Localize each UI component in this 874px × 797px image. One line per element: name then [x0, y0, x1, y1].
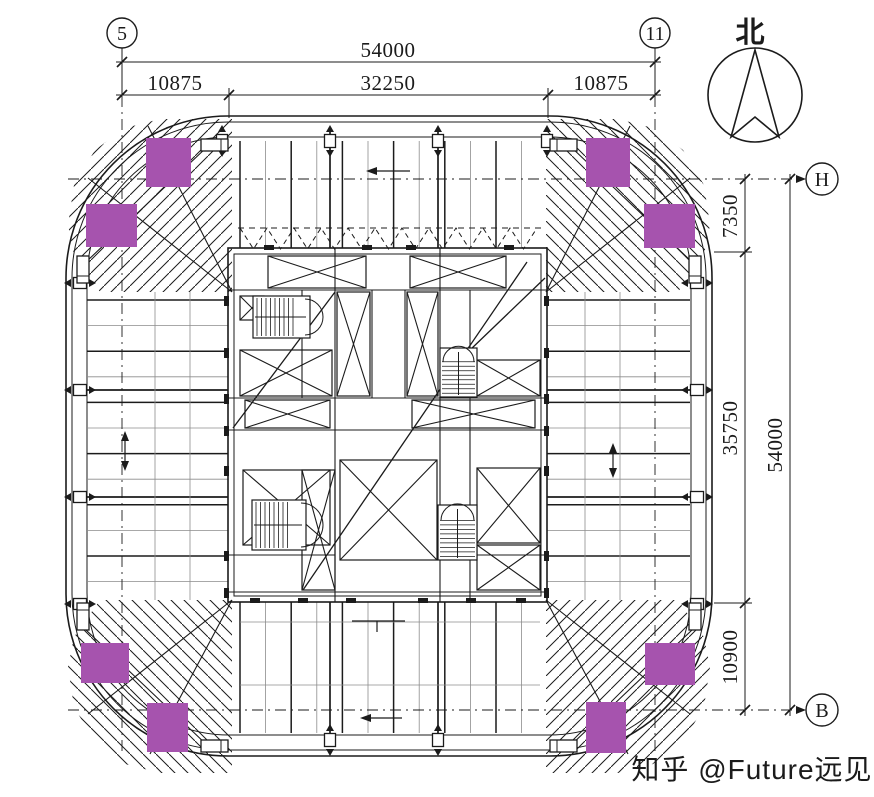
dim-seg-left: 10875: [148, 71, 203, 95]
damper-block: [147, 703, 188, 752]
dimension-top: 5 11 54000 10875 32250 10875: [107, 18, 670, 118]
north-arrow-icon: 北: [708, 15, 802, 142]
dim-seg-mid: 32250: [361, 71, 416, 95]
grid-label-B: B: [815, 700, 828, 722]
leader-arrow: [796, 706, 806, 714]
damper-block: [586, 702, 626, 753]
dim-seg-35750: 35750: [718, 401, 742, 456]
dimension-right: H B 7350 35750 10900 54000: [714, 163, 838, 726]
damper-block: [644, 204, 695, 248]
damper-block: [586, 138, 630, 187]
damper-block: [645, 643, 695, 685]
grid-label-11: 11: [645, 23, 664, 45]
dim-seg-right: 10875: [574, 71, 629, 95]
damper-block: [81, 643, 129, 683]
damper-block: [146, 138, 191, 187]
grid-label-H: H: [815, 169, 829, 191]
damper-block: [86, 204, 137, 247]
dim-total-right: 54000: [763, 418, 787, 473]
leader-arrow: [796, 175, 806, 183]
floor-plan-canvas: 5 11 54000 10875 32250 10875 H B: [0, 0, 874, 797]
core: [224, 245, 549, 603]
dim-seg-7350: 7350: [718, 194, 742, 238]
dim-seg-10900: 10900: [718, 630, 742, 685]
grid-label-5: 5: [117, 23, 127, 45]
floor-plan-page: 5 11 54000 10875 32250 10875 H B: [0, 0, 874, 797]
dim-total-top: 54000: [361, 38, 416, 62]
north-label: 北: [735, 15, 764, 49]
watermark: 知乎 @Future远见: [631, 754, 872, 785]
